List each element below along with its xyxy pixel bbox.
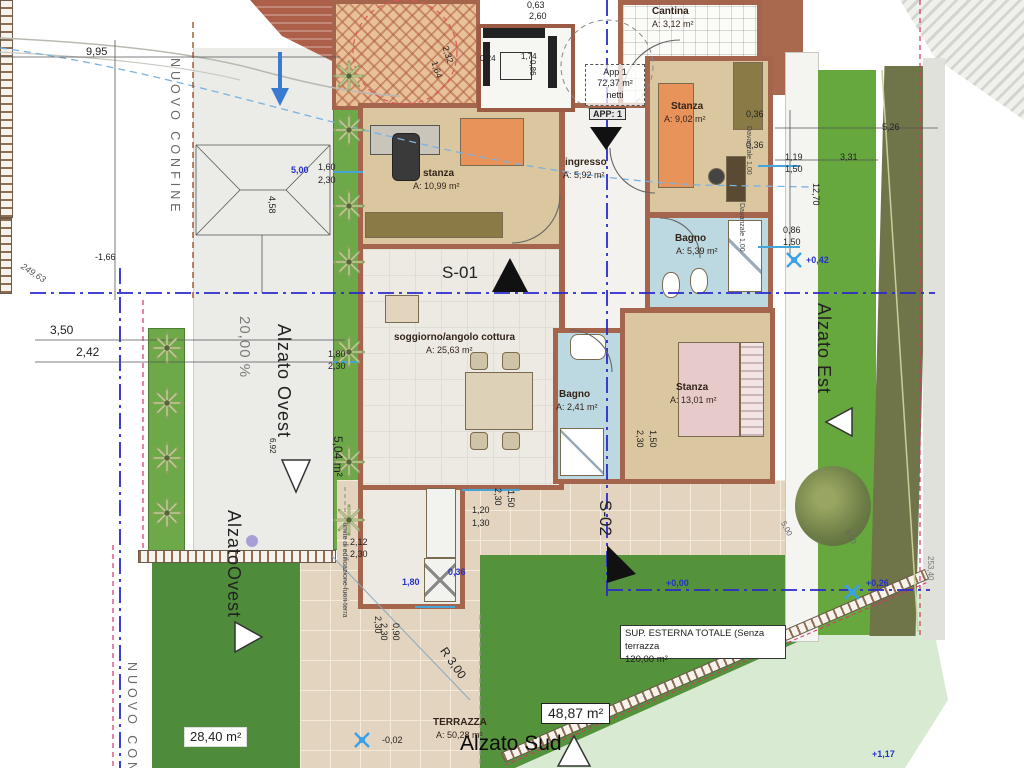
- radius-leader: [332, 556, 470, 700]
- sill-label-2: Davanzale 1,00: [738, 203, 745, 252]
- dim-119: 1,19: [785, 153, 803, 162]
- apartment-name: App 1: [586, 67, 644, 78]
- dim-230-c: 2,30: [635, 430, 644, 448]
- ramp-slope-label: 20,00 %: [236, 316, 252, 378]
- section-s01-triangle: [492, 258, 528, 292]
- external-surface-line1: SUP. ESTERNA TOTALE (Senza terrazza: [625, 628, 781, 654]
- boundary-label-bottom: NUOVO CONFINE: [125, 662, 138, 768]
- dim-230-d: 2,30: [350, 550, 368, 559]
- building-limit-label: limite di edificazione fuori terra: [341, 523, 348, 618]
- entrance-arrow: [590, 127, 622, 150]
- lawn-se-area: 48,87 m²: [541, 703, 610, 724]
- dim-150-a: 1,50: [785, 165, 803, 174]
- dim-242: 2,42: [76, 346, 99, 359]
- dim-995: 9,95: [86, 47, 107, 59]
- elevation-south-label: Alzato Sud: [460, 733, 562, 755]
- room-area-stanza-902: A: 9,02 m²: [664, 115, 706, 124]
- elevation-south-triangle: [558, 736, 590, 766]
- level-042: +0,42: [806, 256, 829, 265]
- dim-500-blue: 5,00: [291, 166, 309, 175]
- section-s02-label: S-02: [596, 500, 614, 536]
- dim-150-d: 1,50: [506, 490, 515, 508]
- elevation-east-triangle: [826, 408, 852, 436]
- room-area-soggiorno: A: 25,63 m²: [426, 346, 473, 355]
- elevation-west-label: Alzato Ovest: [274, 324, 293, 438]
- slope-arrow-head: [271, 88, 289, 106]
- linework-layer: [0, 0, 1024, 768]
- room-area-bagno-539: A: 5,39 m²: [676, 247, 718, 256]
- dim-180-blue: 1,80: [402, 578, 420, 587]
- dim-230-a: 2,30: [318, 176, 336, 185]
- level-026: +0,26: [866, 579, 889, 588]
- room-label-bagno-539: Bagno: [675, 234, 706, 245]
- apartment-badge: APP: 1: [589, 108, 626, 120]
- elevation-west2-triangle: [235, 622, 262, 652]
- room-label-ingresso: ingresso: [565, 158, 607, 169]
- dim-086-stair: 0,86: [528, 60, 536, 76]
- apartment-note: netti: [586, 90, 644, 101]
- boundary-label-top: NUOVO CONFINE: [168, 58, 181, 216]
- dim-458: 4,58: [267, 196, 276, 214]
- level-minus002: -0,02: [382, 736, 403, 745]
- elevation-west2-label: AlzatoOvest: [224, 510, 243, 618]
- dim-212: 2,12: [350, 538, 368, 547]
- room-label-stanza-1099: stanza: [423, 169, 454, 180]
- terrace-label: TERRAZZA: [433, 718, 487, 729]
- sill-label-1: Davanzale 1,00: [745, 126, 752, 175]
- dim-260: 2,60: [529, 12, 547, 21]
- dim-1270: 12,70: [811, 183, 820, 206]
- survey-marker-icon: [849, 589, 855, 595]
- room-label-stanza-902: Stanza: [671, 102, 703, 113]
- external-surface-line2: 120,00 m²: [625, 654, 781, 667]
- road-marking: [882, 70, 918, 632]
- survey-marker-icon: [791, 257, 797, 263]
- room-area-cantina: A: 3,12 m²: [652, 20, 694, 29]
- dimension-lines: [0, 40, 938, 362]
- road-edge-curve: [0, 52, 240, 80]
- dim-230-g: 2,30: [379, 623, 388, 641]
- level-25340: 253,40: [926, 556, 934, 580]
- dim-160: 1,60: [318, 163, 336, 172]
- dim-230-f: 2,30: [493, 488, 502, 506]
- dim-130: 1,30: [472, 519, 490, 528]
- dim-150-c: 1,50: [648, 430, 657, 448]
- lawn-sw-area: 28,40 m²: [184, 727, 247, 747]
- area-504: 5,04 m²: [331, 436, 344, 477]
- dim-120: 1,20: [472, 506, 490, 515]
- dim-230-b: 2,30: [328, 362, 346, 371]
- external-surface-box: SUP. ESTERNA TOTALE (Senza terrazza 120,…: [620, 625, 786, 659]
- room-label-bagno-241: Bagno: [559, 390, 590, 401]
- room-area-stanza-1099: A: 10,99 m²: [413, 182, 460, 191]
- dim-024: 0,24: [480, 55, 496, 63]
- dim-036-a: 0,36: [746, 110, 764, 119]
- reference-dot: [246, 535, 258, 547]
- boundary-line: [505, 582, 928, 765]
- dim-150-b: 1,50: [783, 238, 801, 247]
- dim-692: 6,92: [268, 438, 276, 454]
- elevation-east-label: Alzato Est: [814, 303, 833, 394]
- dim-180-a: 1,80: [328, 350, 346, 359]
- elevation-west-triangle: [282, 460, 310, 492]
- apartment-callout: App 1 72,37 m² netti: [585, 64, 645, 106]
- dim-086: 0,86: [783, 226, 801, 235]
- section-s02-triangle: [607, 545, 636, 583]
- level-000: +0,00: [666, 579, 689, 588]
- level-minus166: -1,66: [95, 253, 116, 262]
- dim-331: 3,31: [840, 153, 858, 162]
- room-label-soggiorno: soggiorno/angolo cottura: [394, 333, 515, 344]
- dim-350: 3,50: [50, 324, 73, 337]
- survey-marker-icon: [359, 737, 365, 743]
- level-117: +1,17: [872, 750, 895, 759]
- room-label-cantina: Cantina: [652, 7, 689, 18]
- dim-063: 0,63: [527, 1, 545, 10]
- dim-090: 0,90: [391, 623, 400, 641]
- window-lines: [333, 166, 800, 607]
- floor-plan-canvas: App 1 72,37 m² netti APP: 1 SUP. ESTERNA…: [0, 0, 1024, 768]
- room-area-bagno-241: A: 2,41 m²: [556, 403, 598, 412]
- apartment-area: 72,37 m²: [586, 78, 644, 89]
- room-area-ingresso: A: 5,92 m²: [563, 171, 605, 180]
- dim-036-blue: 0,36: [448, 568, 466, 577]
- section-s01-label: S-01: [442, 264, 478, 282]
- room-label-stanza-1301: Stanza: [676, 383, 708, 394]
- dim-526: 5,26: [882, 123, 900, 132]
- room-area-stanza-1301: A: 13,01 m²: [670, 396, 717, 405]
